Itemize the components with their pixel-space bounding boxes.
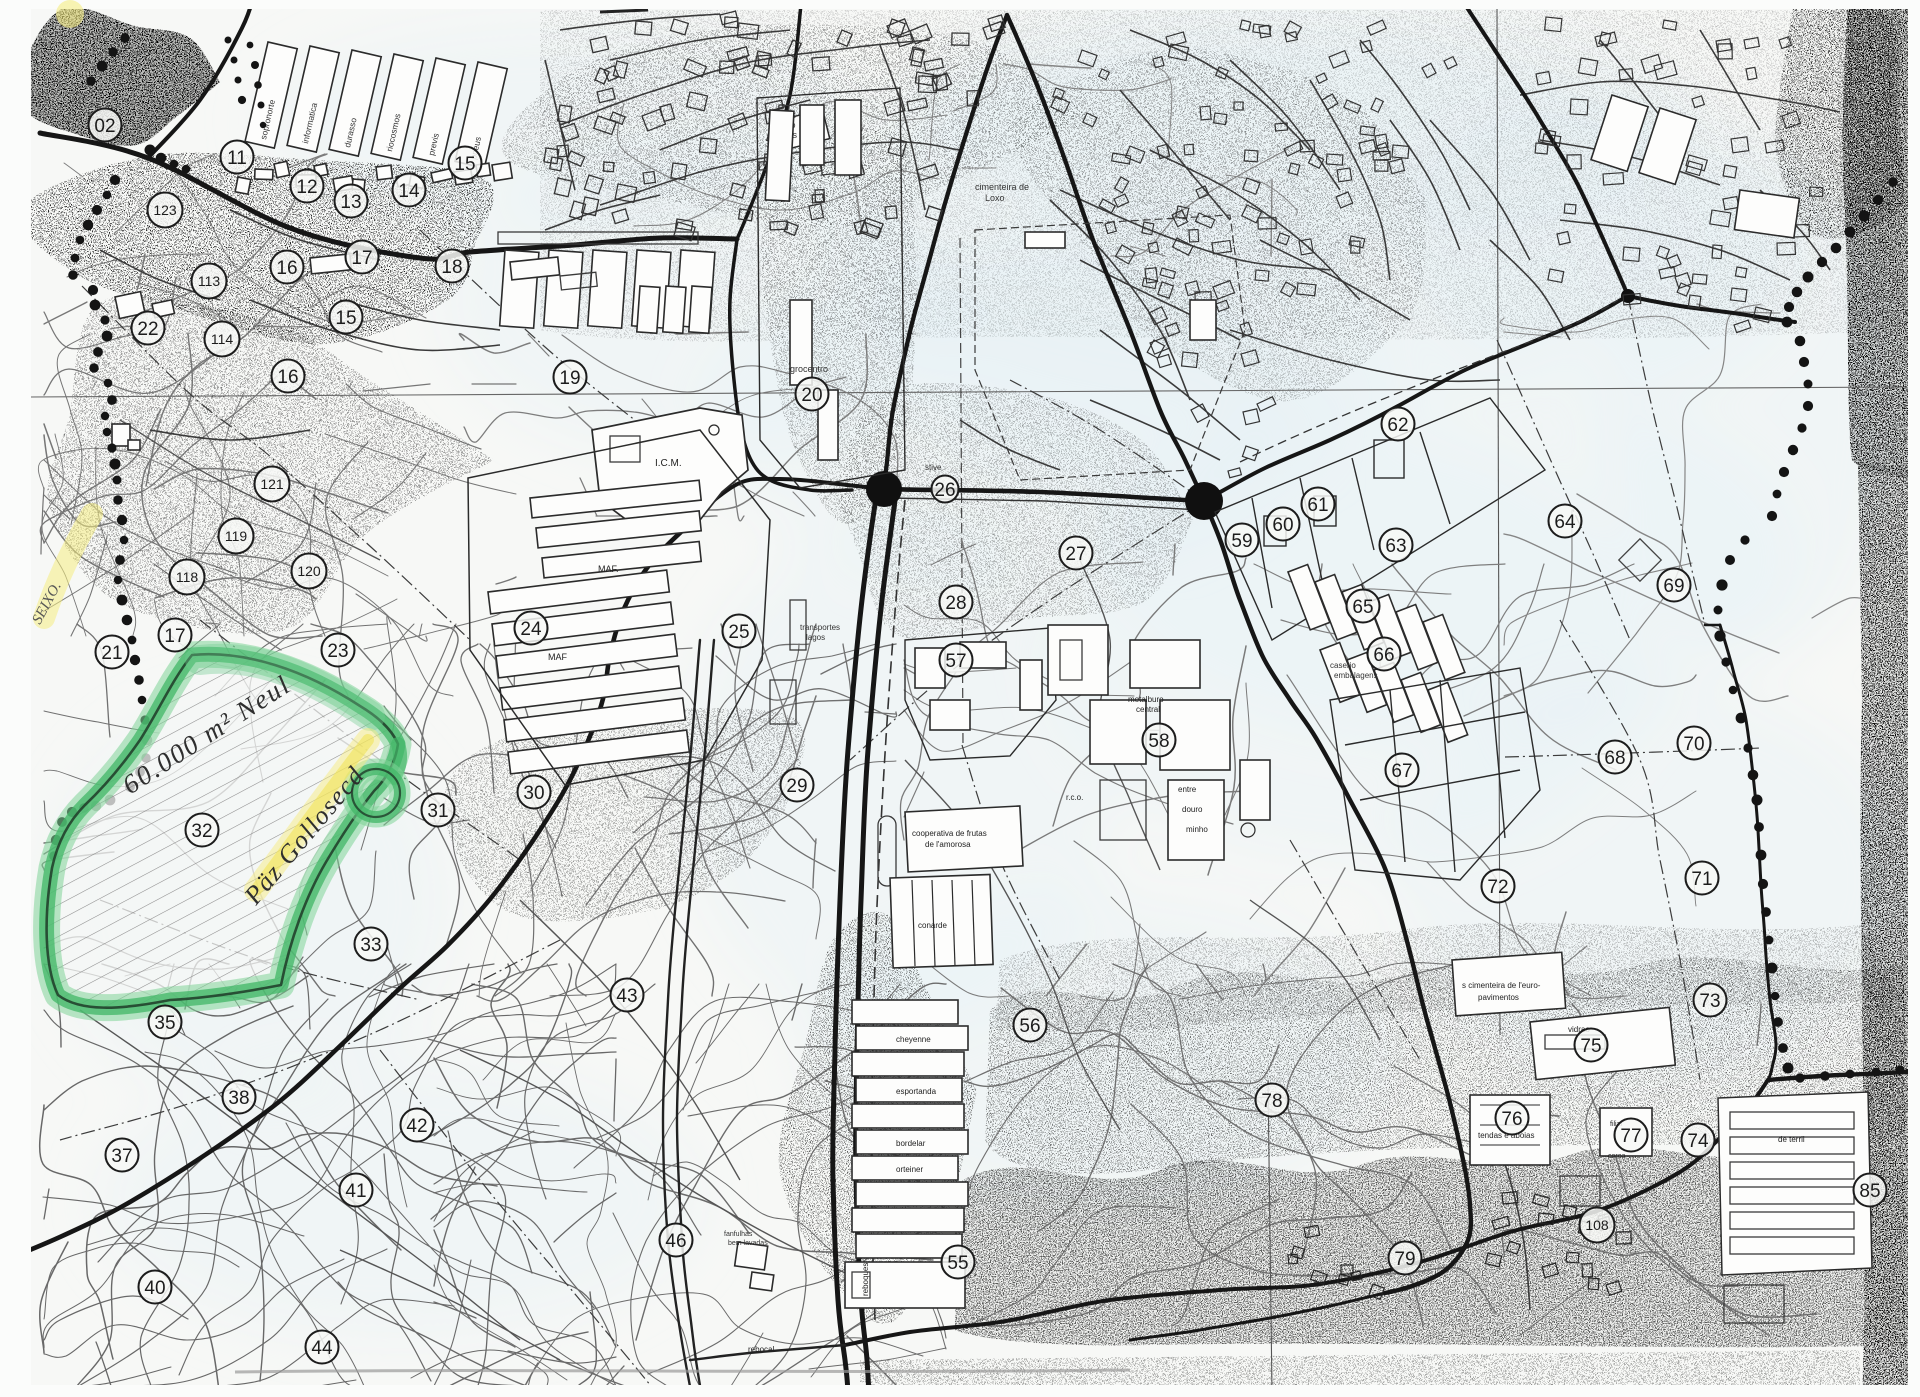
svg-text:56: 56 <box>1019 1016 1040 1037</box>
svg-text:lagos: lagos <box>806 633 825 642</box>
svg-text:I.C.M.: I.C.M. <box>655 458 682 469</box>
svg-text:30: 30 <box>523 783 544 804</box>
svg-text:reboques: reboques <box>861 1263 870 1296</box>
svg-text:40: 40 <box>144 1278 165 1299</box>
svg-text:108: 108 <box>1585 1217 1609 1233</box>
svg-text:stive: stive <box>925 463 942 472</box>
svg-text:rebocal: rebocal <box>748 1345 774 1354</box>
svg-text:douro: douro <box>1182 805 1203 814</box>
svg-text:27: 27 <box>1065 544 1086 565</box>
svg-text:123: 123 <box>153 202 177 218</box>
svg-text:metalburo: metalburo <box>1128 695 1164 704</box>
svg-text:s cimenteira de l'euro-: s cimenteira de l'euro- <box>1462 981 1541 990</box>
svg-text:cooperativa de frutas: cooperativa de frutas <box>912 829 987 838</box>
svg-text:18: 18 <box>441 257 462 278</box>
svg-text:orteiner: orteiner <box>896 1165 923 1174</box>
svg-text:24: 24 <box>520 619 542 640</box>
svg-text:Loxo: Loxo <box>985 193 1005 203</box>
svg-text:11: 11 <box>227 148 247 169</box>
svg-text:41: 41 <box>345 1181 366 1202</box>
svg-text:17: 17 <box>351 248 372 269</box>
svg-text:entre: entre <box>1178 785 1197 794</box>
svg-text:31: 31 <box>427 801 448 822</box>
svg-text:69: 69 <box>1663 576 1684 597</box>
svg-text:16: 16 <box>277 367 298 388</box>
svg-text:46: 46 <box>665 1231 686 1252</box>
svg-text:65: 65 <box>1352 597 1373 618</box>
svg-text:MAF.: MAF. <box>598 564 619 574</box>
svg-text:cheyenne: cheyenne <box>896 1035 931 1044</box>
svg-text:MAF: MAF <box>548 652 568 662</box>
svg-text:14: 14 <box>398 181 420 202</box>
svg-text:r.c.o.: r.c.o. <box>1066 793 1083 802</box>
svg-text:78: 78 <box>1261 1091 1282 1112</box>
svg-text:66: 66 <box>1373 645 1394 666</box>
svg-text:21: 21 <box>101 643 122 664</box>
svg-text:70: 70 <box>1683 734 1704 755</box>
svg-text:72: 72 <box>1487 877 1508 898</box>
svg-text:26: 26 <box>934 480 955 501</box>
svg-text:20: 20 <box>801 385 822 406</box>
svg-text:120: 120 <box>297 563 321 579</box>
svg-text:113: 113 <box>198 273 221 289</box>
svg-text:76: 76 <box>1501 1109 1522 1130</box>
svg-text:cimenteira de: cimenteira de <box>975 182 1029 192</box>
svg-text:62: 62 <box>1387 415 1408 436</box>
svg-text:59: 59 <box>1231 531 1252 552</box>
svg-text:bem lavadas: bem lavadas <box>728 1240 768 1247</box>
svg-text:28: 28 <box>945 593 966 614</box>
svg-text:33: 33 <box>360 935 381 956</box>
svg-text:central: central <box>1136 705 1160 714</box>
svg-text:15: 15 <box>335 308 356 329</box>
svg-text:19: 19 <box>559 368 580 389</box>
svg-text:caserio: caserio <box>1330 661 1356 670</box>
svg-text:68: 68 <box>1604 748 1625 769</box>
svg-text:29: 29 <box>786 776 807 797</box>
svg-text:15: 15 <box>454 154 475 175</box>
svg-text:22: 22 <box>137 319 158 340</box>
svg-text:63: 63 <box>1385 536 1406 557</box>
svg-text:17: 17 <box>164 626 185 647</box>
svg-text:esportanda: esportanda <box>896 1087 937 1096</box>
svg-text:minho: minho <box>1186 825 1208 834</box>
svg-text:121: 121 <box>260 476 284 492</box>
svg-text:75: 75 <box>1580 1036 1601 1057</box>
svg-text:42: 42 <box>406 1116 427 1137</box>
svg-text:embalagens: embalagens <box>1334 671 1378 680</box>
svg-text:119: 119 <box>225 528 248 544</box>
svg-text:pavimentos: pavimentos <box>1478 993 1519 1002</box>
svg-text:61: 61 <box>1307 495 1328 516</box>
svg-text:44: 44 <box>311 1338 333 1359</box>
svg-text:coroa: coroa <box>1608 1153 1626 1160</box>
svg-text:79: 79 <box>1394 1249 1415 1270</box>
svg-text:25: 25 <box>728 622 749 643</box>
svg-text:118: 118 <box>176 569 199 585</box>
svg-text:fanfulhas: fanfulhas <box>724 1231 753 1238</box>
svg-text:77: 77 <box>1620 1126 1641 1147</box>
svg-text:85: 85 <box>1859 1181 1880 1202</box>
svg-text:16: 16 <box>276 258 297 279</box>
svg-text:37: 37 <box>111 1146 132 1167</box>
svg-text:de terril: de terril <box>1778 1135 1805 1144</box>
svg-text:55: 55 <box>947 1253 968 1274</box>
svg-text:114: 114 <box>211 331 234 347</box>
svg-text:de l'amorosa: de l'amorosa <box>925 840 971 849</box>
svg-text:57: 57 <box>945 651 966 672</box>
svg-text:73: 73 <box>1699 991 1720 1012</box>
svg-text:71: 71 <box>1691 869 1712 890</box>
svg-text:43: 43 <box>616 986 637 1007</box>
svg-text:64: 64 <box>1554 512 1576 533</box>
svg-text:12: 12 <box>296 177 317 198</box>
svg-text:13: 13 <box>340 192 361 213</box>
svg-text:23: 23 <box>327 641 348 662</box>
svg-text:02: 02 <box>94 116 115 137</box>
svg-text:conarde: conarde <box>918 921 947 930</box>
svg-text:74: 74 <box>1687 1131 1709 1152</box>
svg-text:grocentro: grocentro <box>790 364 828 374</box>
svg-text:32: 32 <box>191 821 212 842</box>
svg-text:58: 58 <box>1148 731 1169 752</box>
svg-text:35: 35 <box>154 1013 175 1034</box>
svg-text:38: 38 <box>228 1088 249 1109</box>
svg-text:transportes: transportes <box>800 623 840 632</box>
svg-text:67: 67 <box>1391 761 1412 782</box>
svg-text:60: 60 <box>1272 515 1293 536</box>
svg-text:bordelar: bordelar <box>896 1139 926 1148</box>
